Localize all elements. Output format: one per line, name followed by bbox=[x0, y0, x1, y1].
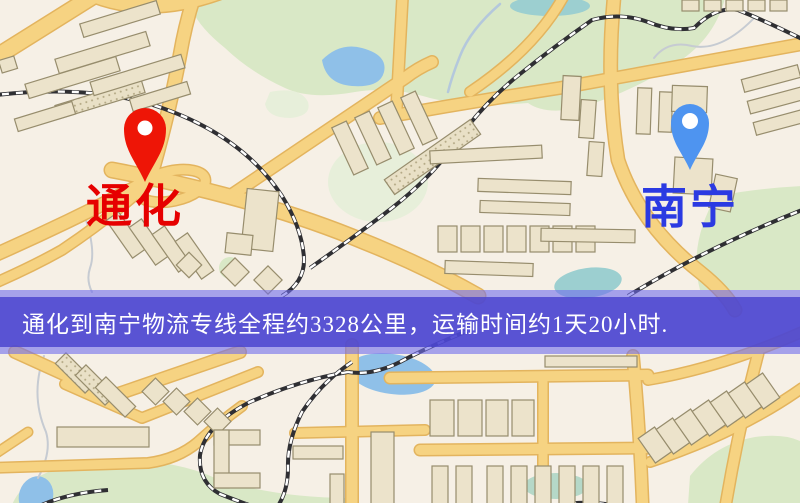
route-banner-core: 通化到南宁物流专线全程约3328公里，运输时间约1天20小时. bbox=[0, 297, 800, 347]
origin-label: 通化 bbox=[86, 181, 184, 232]
map-container[interactable]: 通化 南宁 bbox=[0, 0, 800, 503]
destination-label: 南宁 bbox=[641, 182, 739, 233]
destination-pin-hole bbox=[682, 113, 698, 129]
origin-pin-hole bbox=[138, 121, 153, 136]
route-banner-text: 通化到南宁物流专线全程约3328公里，运输时间约1天20小时. bbox=[0, 305, 668, 339]
route-banner: 通化到南宁物流专线全程约3328公里，运输时间约1天20小时. bbox=[0, 290, 800, 354]
